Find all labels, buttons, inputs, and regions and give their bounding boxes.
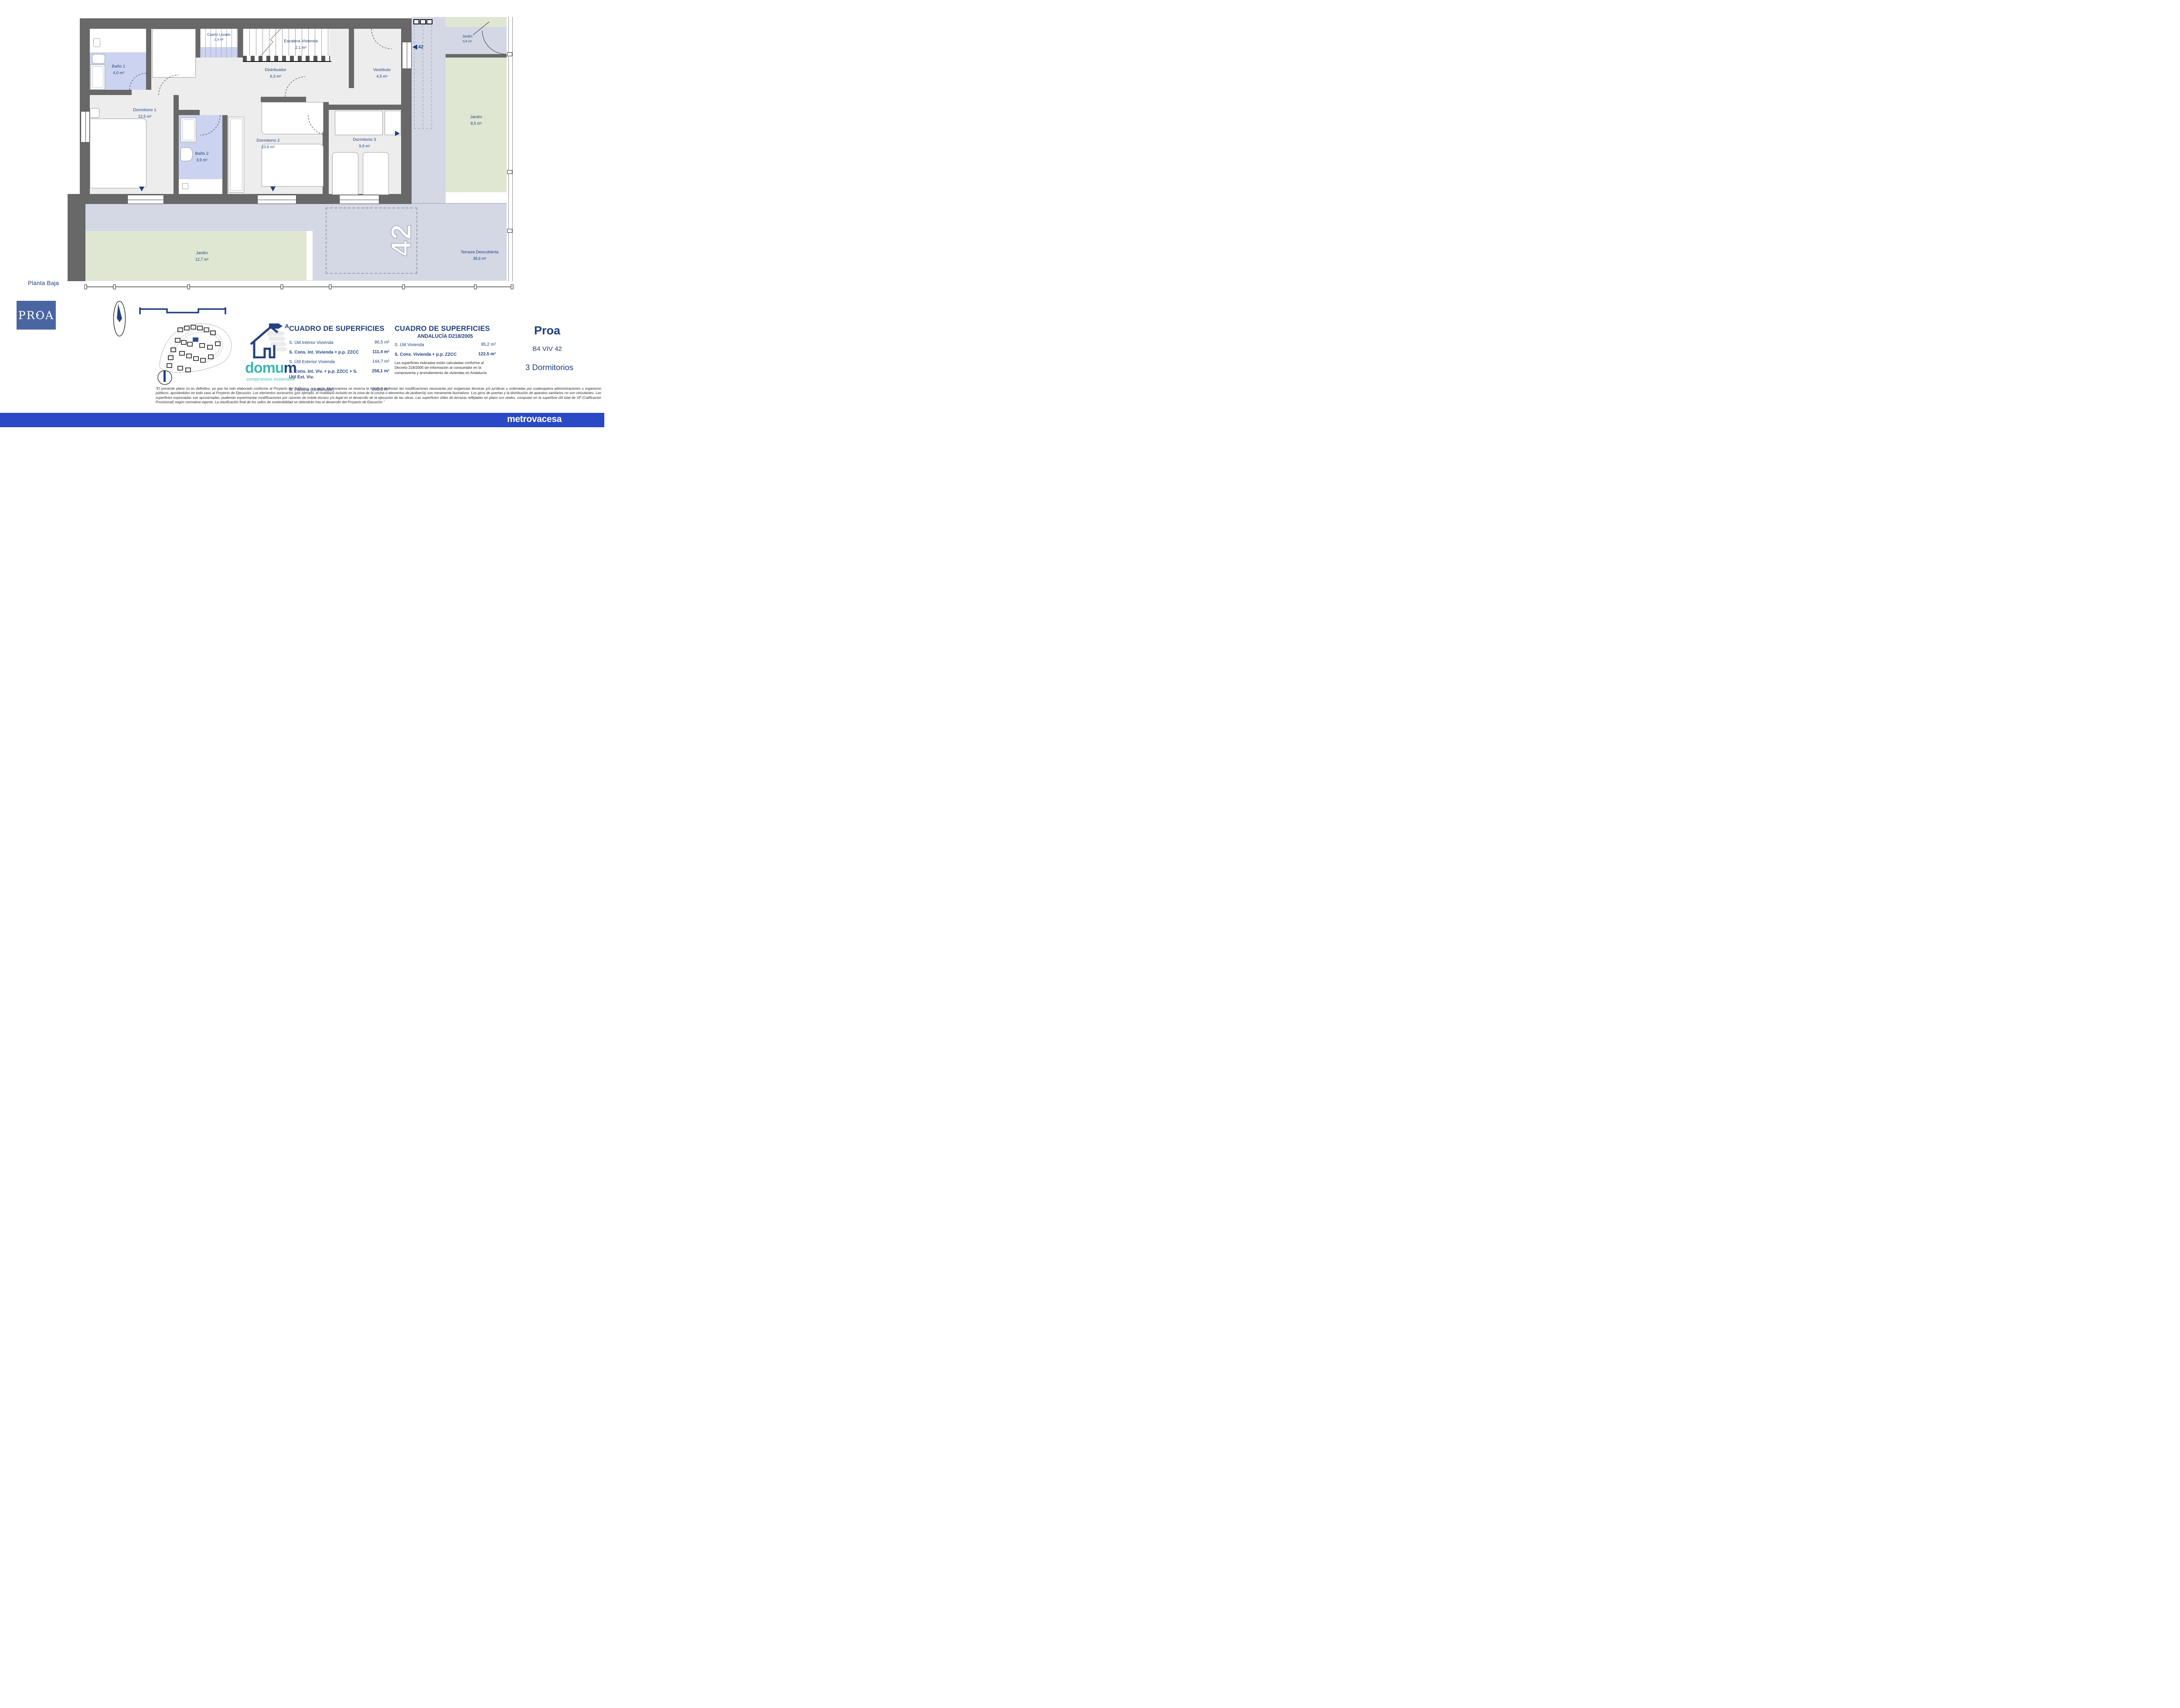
entry-arrow-icon bbox=[412, 44, 417, 50]
legal-disclaimer: “El presente plano no es definitivo, ya … bbox=[156, 387, 601, 405]
room-area: 38,6 m² bbox=[451, 257, 508, 261]
room-name: Terraza Descubierta bbox=[451, 250, 508, 255]
room-area: 2,1 m² bbox=[275, 46, 327, 50]
floor-label: Planta Baja bbox=[28, 280, 59, 286]
table-row: S. Cons. Int. Viv. + p.p. ZZCC + S. Útil… bbox=[289, 369, 389, 380]
room-area: 1,3 m² bbox=[200, 38, 238, 41]
compass-icon bbox=[112, 300, 127, 337]
room-name: Baño 1 bbox=[101, 65, 136, 69]
unit-watermark: 42 bbox=[386, 207, 416, 272]
window-arrow-down bbox=[139, 187, 144, 191]
room-label-lavado: Cuarto Lavado 1,3 m² bbox=[200, 33, 238, 41]
room-area: 10,6 m² bbox=[242, 145, 294, 149]
room-name: Vestíbulo bbox=[360, 68, 404, 72]
site-plan-minimap bbox=[155, 321, 237, 387]
surfaces-table-andalucia: CUADRO DE SUPERFICIES ANDALUCÍA D218/200… bbox=[395, 325, 496, 375]
room-area: 0,6 m² bbox=[454, 40, 480, 43]
project-unit: B4 VIV 42 bbox=[514, 345, 580, 353]
surfaces-table: CUADRO DE SUPERFICIES S. Útil Interior V… bbox=[289, 325, 389, 393]
room-label-jardin-entrada: Jardín 0,6 m² bbox=[454, 35, 480, 43]
proa-logo-text: PROA bbox=[18, 309, 54, 322]
table-row: S. Cons. Int. Vivienda + p.p. ZZCC 111,4… bbox=[289, 350, 389, 355]
footer-bar: metrovacesa bbox=[0, 413, 604, 427]
room-area: 12,5 m² bbox=[119, 115, 171, 119]
table-row: S. Útil Exterior Vivienda 144,7 m² bbox=[289, 359, 389, 365]
room-area: 4,5 m² bbox=[360, 75, 404, 78]
room-area: 12,7 m² bbox=[178, 258, 226, 262]
room-label-jardin-trasero: Jardín 12,7 m² bbox=[178, 251, 226, 262]
window-arrow-down bbox=[270, 187, 276, 191]
domum-house-icon: A bbox=[248, 322, 293, 358]
plan-sheet: 42 42 Baño 1 4,0 m² Cuarto Lavado 1,3 m²… bbox=[0, 0, 604, 427]
unit-entry-marker: 42 bbox=[412, 44, 423, 50]
room-label-dorm1: Dormitorio 1 12,5 m² bbox=[119, 108, 171, 119]
room-name: Distribuidor bbox=[249, 68, 302, 72]
room-name: Baño 2 bbox=[184, 152, 219, 156]
room-label-escalera: Escalera Vivienda 2,1 m² bbox=[275, 39, 327, 50]
room-label-dorm3: Dormitorio 3 9,9 m² bbox=[338, 138, 391, 148]
table-note: Las superficies indicadas están calculad… bbox=[395, 361, 496, 375]
room-name: Dormitorio 3 bbox=[338, 138, 391, 142]
table-title: CUADRO DE SUPERFICIES bbox=[289, 325, 389, 333]
room-name: Jardín bbox=[454, 35, 480, 38]
room-area: 9,9 m² bbox=[338, 144, 391, 148]
window-arrow-right bbox=[395, 131, 400, 136]
table-row: S. Cons. Vivienda + p.p. ZZCC 122,5 m² bbox=[395, 352, 496, 357]
proa-logo: PROA ✦ bbox=[17, 301, 56, 330]
minimap-unit-highlight bbox=[193, 337, 198, 342]
room-label-bano2: Baño 2 3,9 m² bbox=[184, 152, 219, 162]
room-name: Escalera Vivienda bbox=[275, 39, 327, 44]
room-area: 3,9 m² bbox=[184, 158, 219, 162]
room-name: Cuarto Lavado bbox=[200, 33, 238, 37]
room-label-dorm2: Dormitorio 2 10,6 m² bbox=[242, 139, 294, 149]
metrovacesa-logo: metrovacesa bbox=[507, 414, 562, 425]
room-name: Jardín bbox=[178, 251, 226, 255]
energy-rating-letter: A bbox=[285, 323, 289, 330]
room-name: Jardín bbox=[459, 115, 494, 119]
room-area: 8,5 m² bbox=[459, 122, 494, 126]
room-label-terraza: Terraza Descubierta 38,6 m² bbox=[451, 250, 508, 261]
table-subtitle: ANDALUCÍA D218/2005 bbox=[395, 334, 496, 339]
room-label-bano1: Baño 1 4,0 m² bbox=[101, 65, 136, 75]
table-row: S. Útil Vivienda 95,2 m² bbox=[395, 342, 496, 348]
room-label-jardin-lateral: Jardín 8,5 m² bbox=[459, 115, 494, 126]
unit-entry-number: 42 bbox=[418, 44, 423, 50]
table-row: S. Útil Interior Vivienda 86,5 m² bbox=[289, 340, 389, 346]
project-bedrooms: 3 Dormitorios bbox=[514, 363, 584, 372]
room-label-distribuidor: Distribuidor 6,3 m² bbox=[249, 68, 302, 78]
table-title: CUADRO DE SUPERFICIES bbox=[395, 325, 496, 333]
proa-star-icon: ✦ bbox=[37, 313, 41, 317]
room-area: 4,0 m² bbox=[101, 71, 136, 75]
room-label-vestibulo: Vestíbulo 4,5 m² bbox=[360, 68, 404, 78]
room-area: 6,3 m² bbox=[249, 75, 302, 78]
scale-bar bbox=[139, 306, 227, 316]
room-name: Dormitorio 1 bbox=[119, 108, 171, 112]
floor-plan: 42 42 Baño 1 4,0 m² Cuarto Lavado 1,3 m²… bbox=[0, 0, 604, 305]
project-name: Proa bbox=[514, 324, 580, 337]
room-name: Dormitorio 2 bbox=[242, 139, 294, 143]
